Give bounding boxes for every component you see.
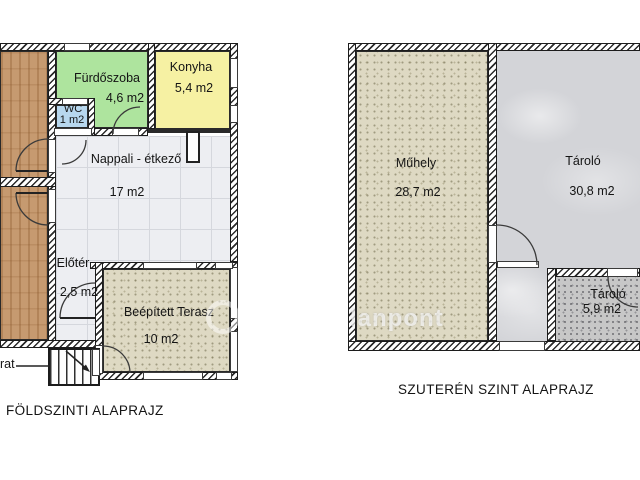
- window-top-wall: [64, 43, 90, 51]
- label-stairs: rat: [0, 358, 18, 372]
- label-living-name: Nappali - étkező: [80, 153, 192, 167]
- label-foyer-area: 2,5 m2: [55, 286, 103, 300]
- caption-basement-plan: SZUTERÉN SZINT ALAPRAJZ: [398, 382, 594, 397]
- label-wc-area: 1 m2: [52, 114, 92, 126]
- watermark-logo-ring: [206, 300, 240, 334]
- watermark-text: lanpont: [350, 305, 444, 333]
- door-opening-left-room-1: [48, 139, 56, 173]
- door-opening-storage-small: [607, 268, 638, 277]
- room-storage-large-leg: [497, 268, 547, 341]
- label-living-area: 17 m2: [92, 186, 162, 200]
- label-workshop-area: 28,7 m2: [383, 186, 453, 200]
- floorplan-image: Fürdőszoba 4,6 m2 WC 1 m2 Konyha 5,4 m2 …: [0, 0, 640, 480]
- caption-ground-plan: FÖLDSZINTI ALAPRAJZ: [6, 403, 164, 418]
- label-kitchen-area: 5,4 m2: [158, 82, 230, 96]
- window-terrace-top-2: [215, 262, 233, 269]
- wall-bath-kitchen-divider: [148, 43, 155, 129]
- wall-basement-bottom: [348, 341, 640, 351]
- door-opening-basement-exit: [499, 341, 545, 351]
- window-living-right: [230, 105, 238, 123]
- door-leaf-stairs: [92, 349, 100, 376]
- room-wood-side: [0, 51, 48, 340]
- label-workshop-name: Műhely: [381, 157, 451, 171]
- label-foyer-name: Előtér: [52, 257, 94, 271]
- wall-ground-bottom: [0, 340, 100, 348]
- label-bathroom-name: Fürdőszoba: [62, 72, 152, 86]
- wall-storage-small-left: [547, 268, 556, 341]
- door-opening-storage-large: [488, 225, 497, 263]
- label-storage-large-name: Tároló: [548, 155, 618, 169]
- window-terrace-bottom-1: [143, 372, 203, 380]
- wall-ground-top: [0, 43, 238, 51]
- window-terrace-top-1: [143, 262, 197, 269]
- door-opening-wc: [54, 128, 92, 136]
- label-terrace-area: 10 m2: [126, 333, 196, 347]
- door-leaf-storage-large: [497, 261, 539, 268]
- room-foyer: [56, 262, 95, 340]
- label-kitchen-name: Konyha: [155, 61, 227, 75]
- label-storage-small-name: Tároló: [573, 288, 640, 302]
- wall-wood-divider: [0, 177, 56, 187]
- label-storage-small-area: 5,9 m2: [567, 303, 637, 317]
- door-opening-left-room-2: [48, 189, 56, 223]
- window-kitchen-right: [230, 58, 238, 88]
- window-terrace-right-2: [230, 331, 238, 372]
- door-opening-bathroom: [112, 128, 139, 136]
- label-storage-large-area: 30,8 m2: [557, 185, 627, 199]
- label-bathroom-area: 4,6 m2: [90, 92, 160, 106]
- window-terrace-bottom-2: [216, 372, 232, 380]
- wall-basement-divider: [488, 43, 497, 341]
